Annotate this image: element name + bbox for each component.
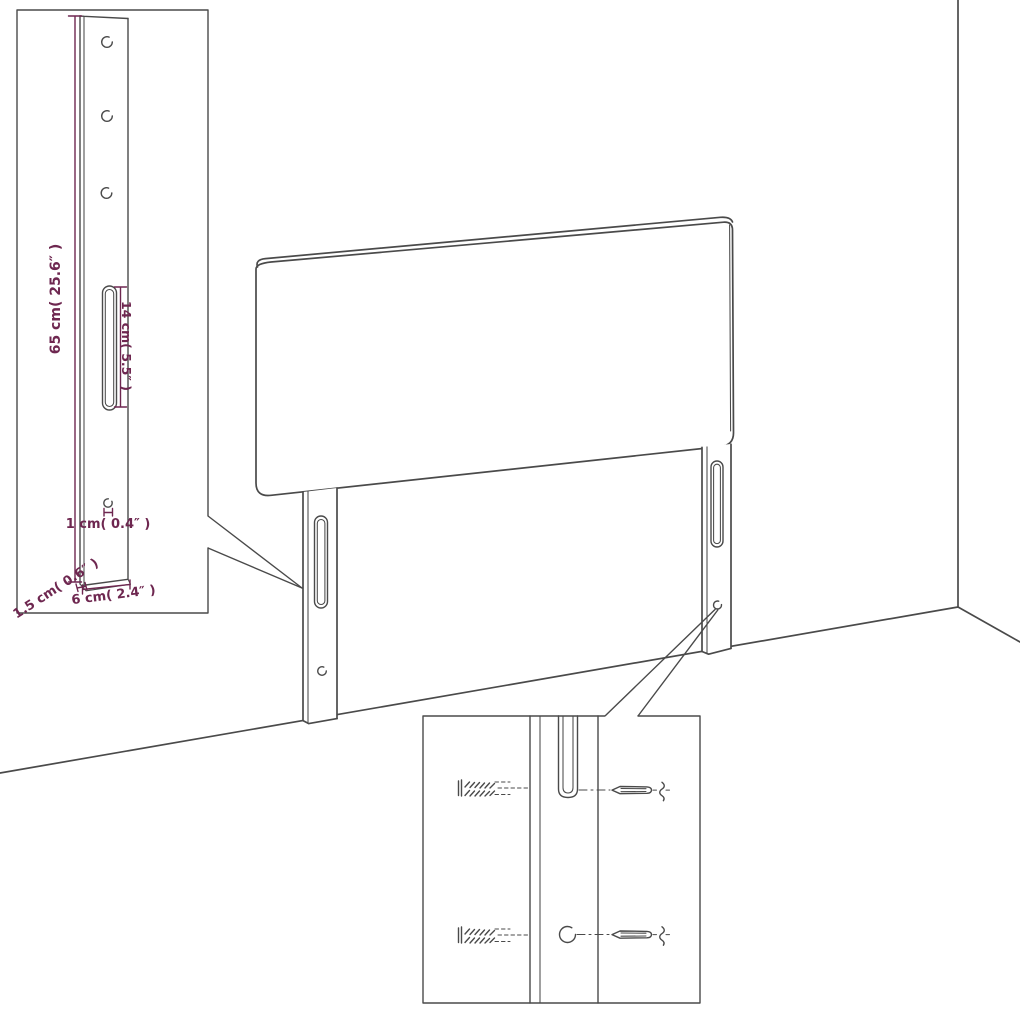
dim-label-slot: 14 cm( 5.5″ ) [119, 301, 134, 391]
floor-line-right [958, 607, 1020, 642]
mounting-detail-inset [423, 716, 700, 1003]
leg-detail-inset: 65 cm( 25.6″ ) 14 cm( 5.5″ ) 1 cm( 0.4″ … [11, 10, 208, 622]
callout-lines-leg-inset [208, 516, 302, 588]
headboard-leg-right [702, 444, 731, 654]
diagram-page: 65 cm( 25.6″ ) 14 cm( 5.5″ ) 1 cm( 0.4″ … [0, 0, 1020, 1020]
dim-label-hole: 1 cm( 0.4″ ) [66, 517, 151, 532]
headboard-leg-left [303, 488, 337, 724]
inset-box-2 [423, 716, 700, 1003]
assembly-diagram: 65 cm( 25.6″ ) 14 cm( 5.5″ ) 1 cm( 0.4″ … [0, 0, 1020, 1020]
headboard-panel [256, 222, 734, 495]
callout-lines-mount-inset [605, 610, 718, 717]
headboard [256, 217, 734, 724]
dim-label-height: 65 cm( 25.6″ ) [48, 244, 64, 355]
